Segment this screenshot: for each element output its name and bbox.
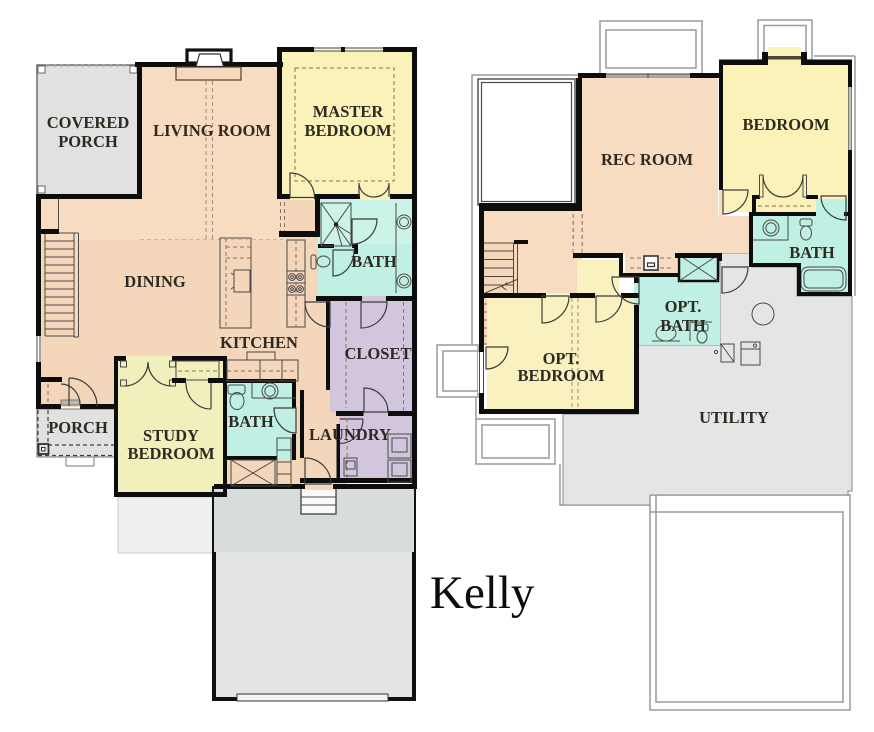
svg-text:REC ROOM: REC ROOM: [601, 150, 694, 169]
svg-text:DINING: DINING: [124, 272, 186, 291]
svg-text:UTILITY: UTILITY: [699, 408, 769, 427]
svg-text:BATH: BATH: [228, 412, 274, 431]
svg-text:BEDROOM: BEDROOM: [127, 444, 215, 463]
svg-text:LAUNDRY: LAUNDRY: [309, 425, 391, 444]
svg-text:Kelly: Kelly: [430, 567, 535, 619]
svg-text:BATH: BATH: [660, 316, 706, 335]
svg-text:LIVING ROOM: LIVING ROOM: [153, 121, 271, 140]
svg-text:MASTER: MASTER: [313, 102, 385, 121]
svg-text:PORCH: PORCH: [48, 418, 108, 437]
svg-text:BATH: BATH: [351, 252, 397, 271]
svg-text:BEDROOM: BEDROOM: [742, 115, 830, 134]
svg-text:COVERED: COVERED: [47, 113, 130, 132]
svg-text:BEDROOM: BEDROOM: [517, 366, 605, 385]
svg-text:BATH: BATH: [789, 243, 835, 262]
svg-text:BEDROOM: BEDROOM: [304, 121, 392, 140]
svg-text:KITCHEN: KITCHEN: [220, 333, 298, 352]
svg-text:CLOSET: CLOSET: [345, 344, 412, 363]
svg-text:PORCH: PORCH: [58, 132, 118, 151]
svg-text:STUDY: STUDY: [143, 426, 199, 445]
svg-text:OPT.: OPT.: [665, 297, 702, 316]
